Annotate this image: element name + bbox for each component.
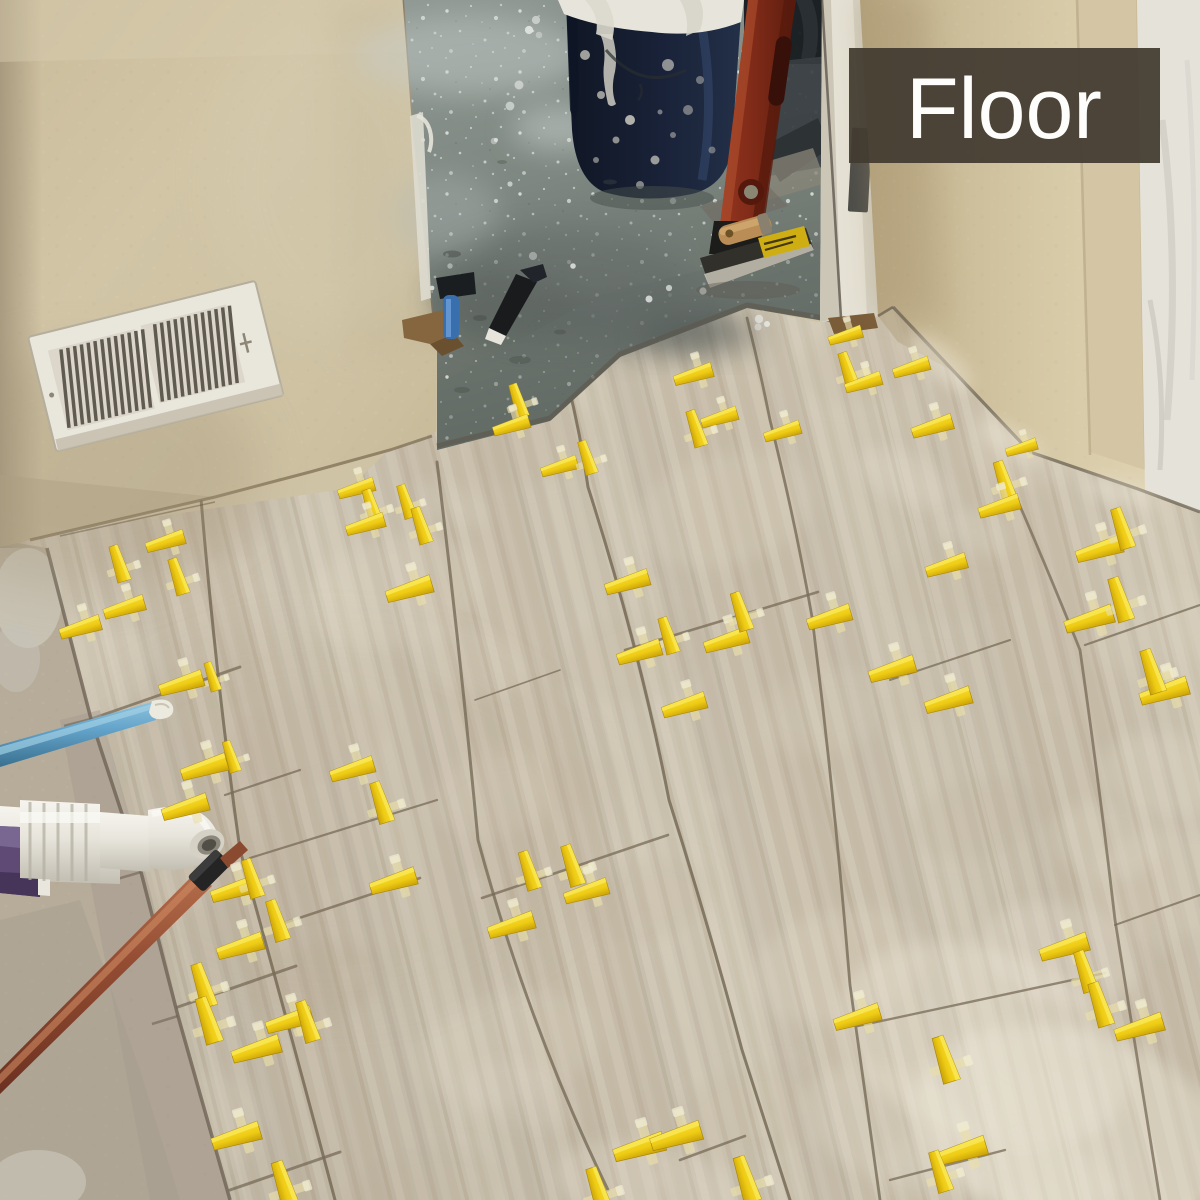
svg-text:Floor: Floor: [906, 61, 1102, 157]
